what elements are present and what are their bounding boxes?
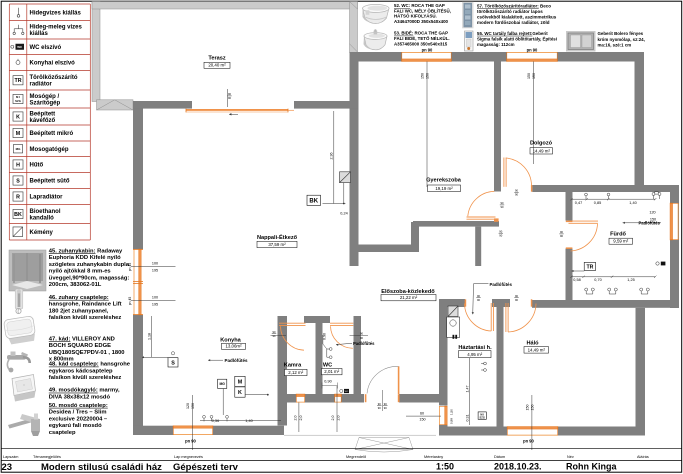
svg-text:150: 150 bbox=[525, 405, 529, 411]
svg-text:Szárítógép: Szárítógép bbox=[30, 100, 61, 106]
svg-text:2,36: 2,36 bbox=[329, 153, 333, 160]
svg-text:szögletes zuhanykabin dupla: szögletes zuhanykabin dupla bbox=[49, 262, 130, 268]
svg-text:A34647000D 350x540x400: A34647000D 350x540x400 bbox=[394, 19, 449, 24]
svg-text:Megrendelő: Megrendelő bbox=[346, 455, 366, 459]
svg-text:195: 195 bbox=[152, 269, 158, 273]
svg-text:Lapradiátor: Lapradiátor bbox=[30, 195, 64, 201]
svg-text:90: 90 bbox=[560, 230, 563, 234]
svg-text:Háztartási h.: Háztartási h. bbox=[458, 345, 492, 351]
svg-text:150: 150 bbox=[531, 405, 535, 411]
svg-text:1,40: 1,40 bbox=[629, 201, 636, 205]
svg-text:pn 45: pn 45 bbox=[128, 297, 132, 306]
svg-text:WC: WC bbox=[323, 362, 332, 368]
svg-text:Bioethanol: Bioethanol bbox=[30, 209, 61, 215]
svg-text:pn 90: pn 90 bbox=[523, 438, 534, 443]
svg-text:radiátor: radiátor bbox=[30, 82, 53, 88]
svg-text:0,70: 0,70 bbox=[594, 278, 601, 282]
svg-text:TR: TR bbox=[586, 264, 593, 270]
svg-text:150: 150 bbox=[420, 73, 424, 79]
svg-text:Háló: Háló bbox=[526, 341, 539, 347]
svg-text:90: 90 bbox=[384, 406, 387, 410]
svg-text:ma:16, szé:1 cm: ma:16, szé:1 cm bbox=[598, 42, 632, 47]
svg-text:52. WC: ROCA THE GAP: 52. WC: ROCA THE GAP bbox=[394, 3, 445, 8]
svg-text:2,12 m²: 2,12 m² bbox=[288, 370, 303, 375]
svg-text:90: 90 bbox=[501, 201, 504, 205]
svg-text:0,24: 0,24 bbox=[340, 212, 347, 216]
svg-text:Geberit Bolero fényes: Geberit Bolero fényes bbox=[598, 31, 644, 36]
svg-text:Törölközőszárító: Törölközőszárító bbox=[30, 75, 78, 81]
svg-text:Mosogatógép: Mosogatógép bbox=[30, 147, 69, 153]
svg-text:2018.10.23.: 2018.10.23. bbox=[494, 462, 542, 472]
svg-text:150: 150 bbox=[532, 73, 536, 79]
svg-text:1:50: 1:50 bbox=[436, 462, 454, 472]
svg-text:hansgrohe, Raindance Lift: hansgrohe, Raindance Lift bbox=[49, 302, 122, 308]
svg-text:90: 90 bbox=[378, 406, 381, 410]
svg-text:60: 60 bbox=[420, 411, 424, 415]
svg-text:Beépített sütő: Beépített sütő bbox=[30, 179, 70, 185]
svg-text:pn 90: pn 90 bbox=[185, 438, 196, 443]
svg-text:Konyha: Konyha bbox=[220, 338, 241, 344]
svg-text:kávéfőző: kávéfőző bbox=[30, 118, 56, 124]
svg-text:exclusive 20220004 –: exclusive 20220004 – bbox=[49, 416, 108, 422]
svg-text:90: 90 bbox=[228, 96, 231, 100]
svg-text:49. mosdókagyló: marmy,: 49. mosdókagyló: marmy, bbox=[49, 388, 120, 394]
svg-text:Padlófűtés: Padlófűtés bbox=[490, 282, 513, 287]
svg-text:9,59 m²: 9,59 m² bbox=[613, 239, 628, 244]
svg-text:DIVA 38x38x12 mosdó: DIVA 38x38x12 mosdó bbox=[49, 394, 111, 400]
svg-text:BOCH SQUARO EDGE: BOCH SQUARO EDGE bbox=[49, 343, 111, 349]
svg-text:Dolgozó: Dolgozó bbox=[530, 141, 553, 147]
svg-text:90: 90 bbox=[273, 330, 276, 334]
svg-text:Fürdő: Fürdő bbox=[610, 232, 626, 238]
svg-text:19,19 m²: 19,19 m² bbox=[435, 186, 453, 191]
svg-text:M: M bbox=[16, 131, 21, 137]
svg-text:4,95 m²: 4,95 m² bbox=[467, 352, 482, 357]
svg-text:Gyerekszoba: Gyerekszoba bbox=[426, 178, 462, 184]
svg-text:14,49 m²: 14,49 m² bbox=[528, 348, 546, 353]
svg-text:120: 120 bbox=[186, 403, 190, 409]
svg-text:90: 90 bbox=[515, 193, 518, 197]
svg-text:Gépészeti terv: Gépészeti terv bbox=[173, 462, 239, 473]
svg-text:TR: TR bbox=[14, 78, 21, 84]
svg-text:Hűtő: Hűtő bbox=[30, 163, 44, 169]
svg-text:90: 90 bbox=[501, 205, 504, 209]
svg-text:50. mosdó csaptelep:: 50. mosdó csaptelep: bbox=[49, 403, 108, 409]
svg-text:Desidea / Tres – Slim: Desidea / Tres – Slim bbox=[49, 410, 107, 416]
svg-text:kiállás: kiállás bbox=[30, 31, 49, 37]
svg-text:90: 90 bbox=[360, 336, 363, 340]
svg-text:2,0: 2,0 bbox=[299, 416, 303, 421]
svg-text:Nappali-Étkező: Nappali-Étkező bbox=[257, 233, 298, 241]
svg-text:23: 23 bbox=[2, 462, 13, 473]
svg-text:Kamra: Kamra bbox=[284, 363, 302, 369]
svg-text:0,90: 0,90 bbox=[322, 333, 326, 340]
svg-text:falsíkon kívüli szereléshez: falsíkon kívüli szereléshez bbox=[49, 375, 122, 381]
svg-text:57. Törölközőszárítóradiátor:: 57. Törölközőszárítóradiátor: Beco bbox=[477, 3, 551, 8]
svg-text:47. kád: VILLEROY AND: 47. kád: VILLEROY AND bbox=[49, 336, 115, 342]
svg-text:H: H bbox=[16, 162, 20, 168]
svg-text:0,31: 0,31 bbox=[465, 415, 469, 422]
svg-text:200cm, 383062-01L: 200cm, 383062-01L bbox=[49, 282, 102, 288]
svg-text:BK: BK bbox=[14, 212, 22, 218]
svg-text:króm nyomólap, sz:24,: króm nyomólap, sz:24, bbox=[598, 37, 645, 42]
svg-text:0,88: 0,88 bbox=[449, 418, 453, 424]
svg-text:Mosógép /: Mosógép / bbox=[30, 94, 60, 100]
svg-text:46. zuhany csaptelep:: 46. zuhany csaptelep: bbox=[49, 295, 109, 301]
svg-text:90: 90 bbox=[360, 332, 363, 336]
svg-text:14,49 m²: 14,49 m² bbox=[533, 148, 551, 153]
svg-text:UBQ180SQE7PDV-01 , 1800: UBQ180SQE7PDV-01 , 1800 bbox=[49, 350, 125, 356]
svg-text:Padlófűtés: Padlófűtés bbox=[353, 341, 375, 346]
svg-text:S: S bbox=[16, 178, 20, 184]
svg-text:53. BIDÉ: ROCA THE GAP: 53. BIDÉ: ROCA THE GAP bbox=[394, 31, 448, 36]
svg-text:FALI BIDÉ, TETŐ NÉLKÜL.: FALI BIDÉ, TETŐ NÉLKÜL. bbox=[394, 36, 450, 41]
svg-text:Padlófűtés: Padlófűtés bbox=[639, 221, 661, 226]
svg-text:pn 90: pn 90 bbox=[422, 47, 433, 52]
svg-text:egykarú fali mosdó: egykarú fali mosdó bbox=[49, 423, 102, 429]
svg-text:WC: WC bbox=[345, 391, 349, 393]
svg-text:FALI WC, MÉLY ÖBLÍTÉSŰ,: FALI WC, MÉLY ÖBLÍTÉSŰ, bbox=[394, 8, 451, 13]
svg-text:120: 120 bbox=[649, 211, 655, 215]
svg-text:Hideg-meleg vizes: Hideg-meleg vizes bbox=[30, 25, 83, 31]
svg-text:magasság: 112cm: magasság: 112cm bbox=[477, 42, 515, 47]
svg-text:45. zuhanykabin: Radaway: 45. zuhanykabin: Radaway bbox=[49, 248, 123, 254]
svg-text:48. kád csaptelep: hansgrohe: 48. kád csaptelep: hansgrohe bbox=[49, 362, 131, 368]
svg-text:1,18: 1,18 bbox=[147, 333, 151, 340]
svg-text:150: 150 bbox=[426, 73, 430, 79]
svg-text:A357465000 350x540x315: A357465000 350x540x315 bbox=[394, 41, 448, 46]
svg-text:150: 150 bbox=[191, 403, 195, 409]
svg-text:90: 90 bbox=[477, 294, 480, 298]
svg-text:2,0: 2,0 bbox=[331, 416, 335, 421]
svg-text:MG: MG bbox=[16, 147, 21, 151]
svg-text:csaptelep: csaptelep bbox=[49, 430, 76, 436]
svg-text:HÁTSÓ KIFOLYÁSÚ.: HÁTSÓ KIFOLYÁSÚ. bbox=[394, 14, 437, 19]
svg-text:90: 90 bbox=[499, 233, 502, 237]
svg-text:2,0: 2,0 bbox=[294, 416, 298, 421]
svg-text:Lap megnevezés: Lap megnevezés bbox=[174, 455, 203, 459]
svg-text:0,58: 0,58 bbox=[573, 278, 580, 282]
svg-text:K: K bbox=[238, 390, 242, 396]
svg-text:Sigma falsík alatti öblítőtart: Sigma falsík alatti öblítőtartály, Építé… bbox=[477, 36, 557, 41]
svg-text:90: 90 bbox=[515, 189, 518, 193]
svg-text:üveggel,90*90cm, magasság:: üveggel,90*90cm, magasság: bbox=[49, 275, 130, 281]
svg-text:WC elszívó: WC elszívó bbox=[30, 45, 62, 51]
svg-text:150: 150 bbox=[527, 73, 531, 79]
svg-text:2,01 m²: 2,01 m² bbox=[324, 369, 339, 374]
svg-text:Témamegjelölés: Témamegjelölés bbox=[33, 455, 61, 459]
svg-text:Rohn Kinga: Rohn Kinga bbox=[566, 462, 617, 472]
svg-text:M: M bbox=[238, 379, 243, 385]
svg-text:180 2jet zuhanypanel,: 180 2jet zuhanypanel, bbox=[49, 308, 109, 314]
svg-text:Kémény: Kémény bbox=[30, 230, 54, 236]
svg-text:90: 90 bbox=[378, 402, 381, 406]
svg-text:R: R bbox=[16, 194, 20, 200]
svg-text:195: 195 bbox=[152, 303, 158, 307]
svg-text:K: K bbox=[16, 114, 20, 120]
svg-text:SZG: SZG bbox=[480, 415, 485, 419]
svg-text:nyíló ajtókkal 8 mm-es: nyíló ajtókkal 8 mm-es bbox=[49, 269, 111, 275]
svg-text:Beépített mikró: Beépített mikró bbox=[30, 131, 74, 137]
svg-text:Euphoria KDD Kifelé nyíló: Euphoria KDD Kifelé nyíló bbox=[49, 255, 121, 261]
svg-text:BK: BK bbox=[309, 198, 318, 204]
svg-text:falsíkon kívüli szereléshez: falsíkon kívüli szereléshez bbox=[49, 315, 122, 321]
svg-text:90: 90 bbox=[228, 92, 231, 96]
svg-text:1,50: 1,50 bbox=[449, 409, 453, 415]
svg-text:150: 150 bbox=[419, 418, 425, 422]
svg-text:Lapszám: Lapszám bbox=[3, 455, 18, 459]
svg-text:0,56: 0,56 bbox=[212, 419, 219, 423]
svg-text:modern fürdőszobai radiátor, z: modern fürdőszobai radiátor, zöld bbox=[477, 20, 550, 25]
svg-text:90: 90 bbox=[499, 229, 502, 233]
svg-text:1,47: 1,47 bbox=[465, 386, 469, 393]
svg-text:90: 90 bbox=[515, 298, 518, 302]
svg-text:Modern stilusú családi ház: Modern stilusú családi ház bbox=[41, 462, 162, 473]
svg-text:S: S bbox=[171, 360, 175, 366]
svg-text:1,25: 1,25 bbox=[627, 278, 634, 282]
svg-text:Dátum: Dátum bbox=[494, 455, 505, 459]
svg-text:pn 90: pn 90 bbox=[527, 47, 538, 52]
svg-text:100: 100 bbox=[152, 295, 158, 299]
svg-text:1,40: 1,40 bbox=[245, 419, 252, 423]
svg-text:csőívekből kialakított, aszimm: csőívekből kialakított, aszimmetrikus bbox=[477, 15, 557, 20]
svg-text:WC: WC bbox=[17, 45, 23, 49]
svg-text:37,59 m²: 37,59 m² bbox=[268, 242, 286, 247]
svg-text:55. WC tartály falba rejtett:G: 55. WC tartály falba rejtett:Geberit bbox=[477, 31, 548, 36]
svg-text:Terasz: Terasz bbox=[208, 56, 226, 62]
svg-text:pn 45: pn 45 bbox=[128, 263, 132, 272]
svg-text:90: 90 bbox=[560, 234, 563, 238]
svg-text:2,0: 2,0 bbox=[337, 416, 341, 421]
svg-text:0,90: 0,90 bbox=[324, 380, 331, 384]
svg-text:egykaros kádcsaptelep: egykaros kádcsaptelep bbox=[49, 368, 113, 374]
svg-text:MG: MG bbox=[219, 382, 225, 386]
svg-text:0,85: 0,85 bbox=[594, 201, 601, 205]
svg-text:Név: Név bbox=[567, 455, 574, 459]
svg-text:21,22 m²: 21,22 m² bbox=[400, 295, 418, 300]
svg-text:90: 90 bbox=[515, 294, 518, 298]
svg-text:20,40 m²: 20,40 m² bbox=[208, 63, 226, 68]
svg-text:Padlófűtés: Padlófűtés bbox=[225, 358, 249, 363]
svg-text:0,47: 0,47 bbox=[575, 201, 582, 205]
svg-text:Beépített: Beépített bbox=[30, 111, 56, 117]
svg-text:Előszoba-közlekedő: Előszoba-közlekedő bbox=[381, 289, 435, 295]
svg-text:SZG: SZG bbox=[15, 99, 21, 103]
svg-text:90: 90 bbox=[384, 402, 387, 406]
svg-text:Aláírás: Aláírás bbox=[637, 455, 649, 459]
svg-text:Konyhai elszívó: Konyhai elszívó bbox=[30, 61, 76, 67]
svg-text:Hidegvizes kiállás: Hidegvizes kiállás bbox=[30, 10, 82, 16]
svg-text:törölközőszárító radiátor lapo: törölközőszárító radiátor lapos bbox=[477, 9, 543, 14]
svg-text:Méretarány: Méretarány bbox=[424, 455, 443, 459]
svg-text:13,06m²: 13,06m² bbox=[225, 344, 242, 349]
svg-text:kandalló: kandalló bbox=[30, 215, 55, 221]
svg-text:90: 90 bbox=[477, 298, 480, 302]
svg-text:100: 100 bbox=[152, 261, 158, 265]
